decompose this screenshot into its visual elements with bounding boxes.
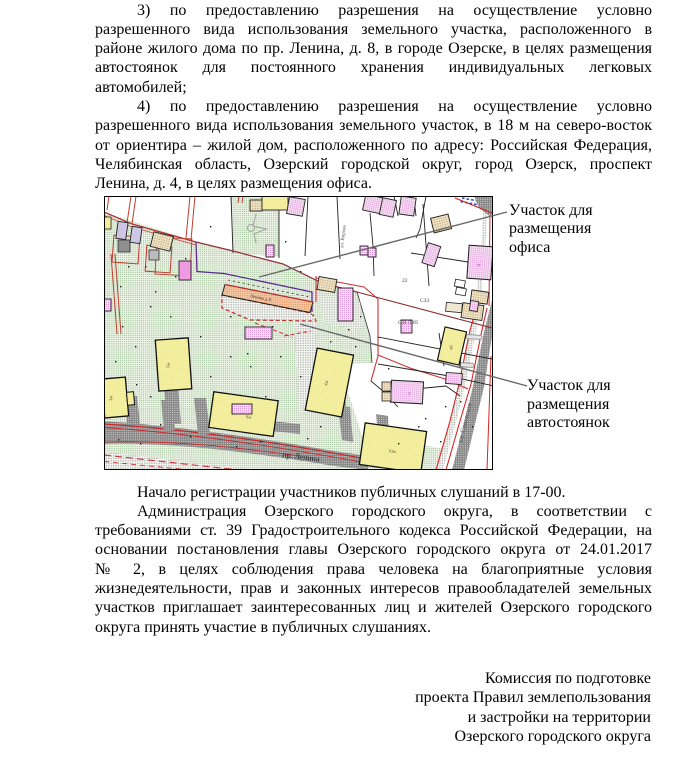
svg-text:СЗЗ ЛЭП: СЗЗ ЛЭП: [398, 321, 418, 326]
svg-text:22: 22: [402, 278, 408, 284]
svg-text:1: 1: [408, 391, 411, 396]
svg-text:СЗЗ: СЗЗ: [420, 298, 429, 304]
